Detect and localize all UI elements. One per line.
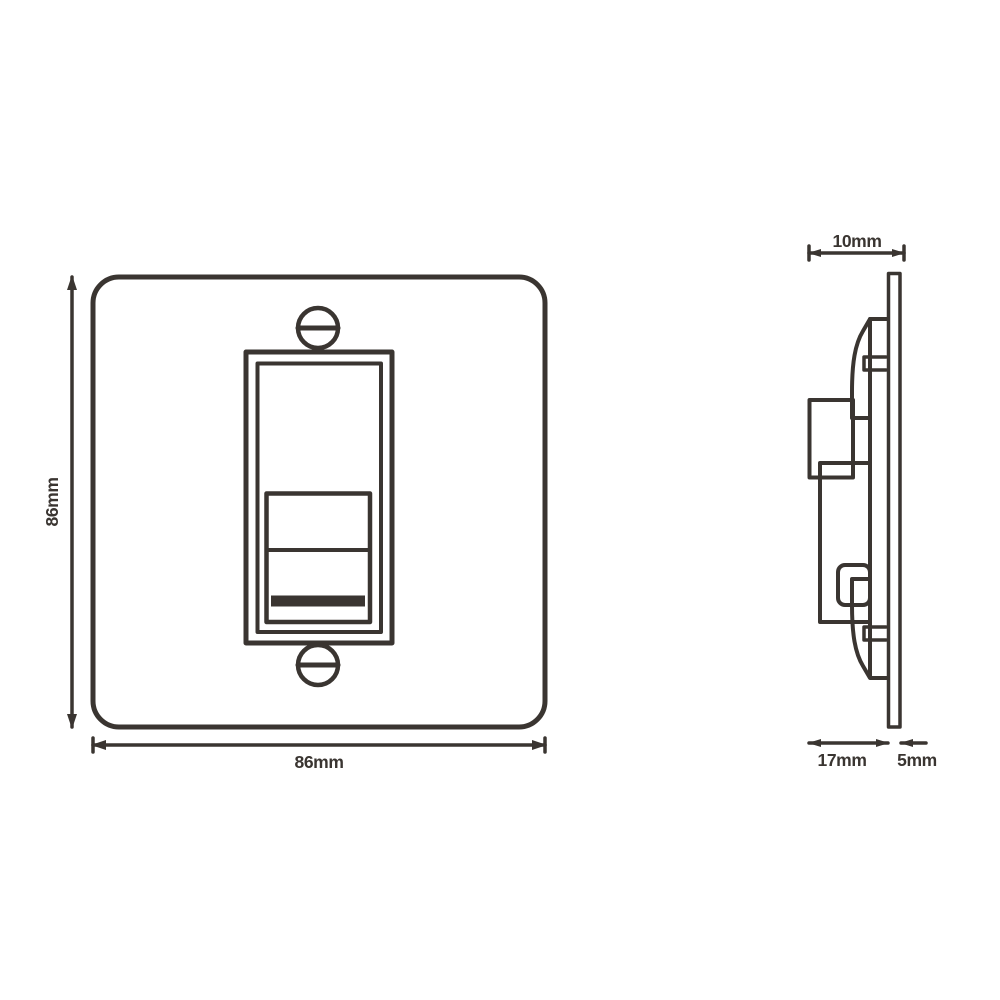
module-inner-frame bbox=[258, 364, 382, 633]
dim-label-total-depth: 10mm bbox=[833, 231, 882, 251]
arrow-left-icon bbox=[808, 739, 821, 747]
plate-profile bbox=[889, 274, 901, 728]
arrow-right-icon bbox=[876, 739, 889, 747]
arrow-up-icon bbox=[67, 275, 77, 290]
dim-label-module-depth: 17mm bbox=[818, 750, 867, 770]
dim-front-height: 86mm bbox=[42, 275, 77, 729]
screw-bottom bbox=[298, 645, 338, 685]
side-view bbox=[810, 274, 901, 728]
front-view bbox=[93, 277, 545, 727]
faceplate-outline bbox=[93, 277, 545, 727]
module-body bbox=[820, 463, 870, 622]
dim-plate-thickness: 5mm bbox=[897, 739, 937, 770]
screw-top bbox=[298, 308, 338, 348]
dim-label-plate-thickness: 5mm bbox=[897, 750, 937, 770]
drawing-canvas: 86mm 86mm 10mm bbox=[0, 0, 1000, 1000]
clip-bottom-notch bbox=[864, 627, 886, 640]
mount-arm bbox=[810, 400, 854, 478]
technical-drawing: 86mm 86mm 10mm bbox=[0, 0, 1000, 1000]
dim-front-width: 86mm bbox=[91, 738, 547, 772]
dim-module-depth: 17mm bbox=[808, 739, 889, 770]
dim-total-depth: 10mm bbox=[808, 231, 905, 260]
dim-label-front-width: 86mm bbox=[295, 752, 344, 772]
arrow-left-icon bbox=[900, 739, 913, 747]
arrow-down-icon bbox=[67, 714, 77, 729]
socket-latch-bar bbox=[271, 596, 365, 607]
dim-label-front-height: 86mm bbox=[42, 478, 62, 527]
dimensions: 86mm 86mm 10mm bbox=[42, 231, 937, 772]
socket-aperture bbox=[267, 494, 371, 623]
clip-top-notch bbox=[864, 357, 886, 370]
